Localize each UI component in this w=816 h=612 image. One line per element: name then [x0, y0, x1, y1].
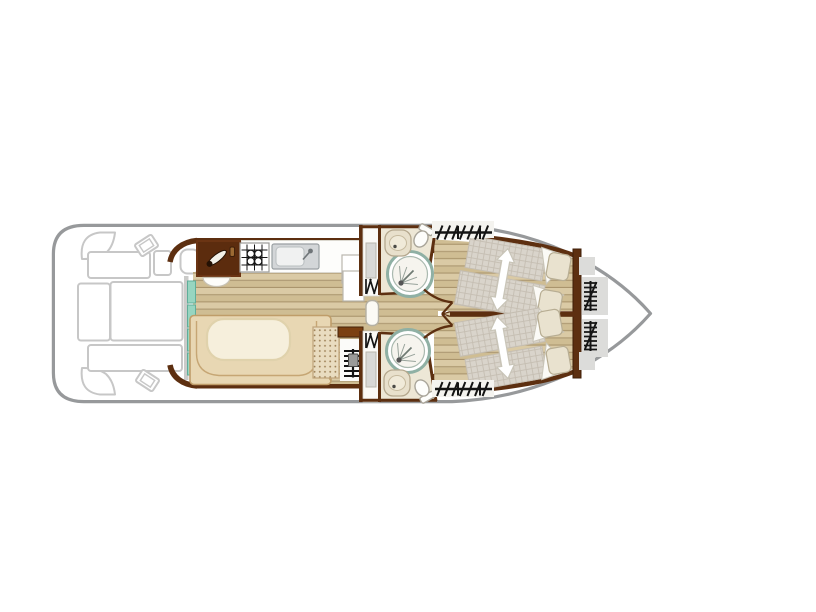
- aft-deck: [78, 233, 200, 395]
- storage-shelf-bottom: [366, 352, 376, 387]
- kitchen-sink-icon: [272, 244, 319, 269]
- window-hatch-bottom: [432, 380, 494, 397]
- bath-wall-left-bottom: [359, 331, 363, 402]
- deck-pad-bottom: [579, 352, 595, 370]
- bath-wall-right-top: [378, 225, 381, 295]
- shower-icon-bottom: [387, 330, 430, 373]
- gas-hob-icon: [240, 243, 269, 272]
- pillow-bottom-1: [537, 309, 563, 338]
- window-hatch-top: [432, 221, 494, 240]
- boat-floor-plan: [0, 0, 816, 612]
- pillow-top-1: [545, 252, 571, 281]
- bottle-icon: [230, 247, 235, 257]
- helm-seat: [154, 251, 171, 275]
- bath-wall-left-top: [359, 225, 363, 296]
- sofa-right: [111, 282, 183, 341]
- cabin-door-leaf: [366, 301, 379, 326]
- deck-pad-top: [579, 257, 595, 275]
- bath-wall-right-bottom: [378, 332, 381, 402]
- upholstered-seat: [313, 327, 339, 378]
- pillow-bottom-2: [545, 346, 571, 375]
- dinette-table: [207, 319, 290, 360]
- sofa-left: [78, 284, 110, 341]
- storage-shelf-top: [366, 243, 376, 278]
- washbasin-icon-top: [385, 230, 411, 256]
- plan-canvas: [0, 0, 816, 612]
- washbasin-icon-bottom: [384, 370, 410, 396]
